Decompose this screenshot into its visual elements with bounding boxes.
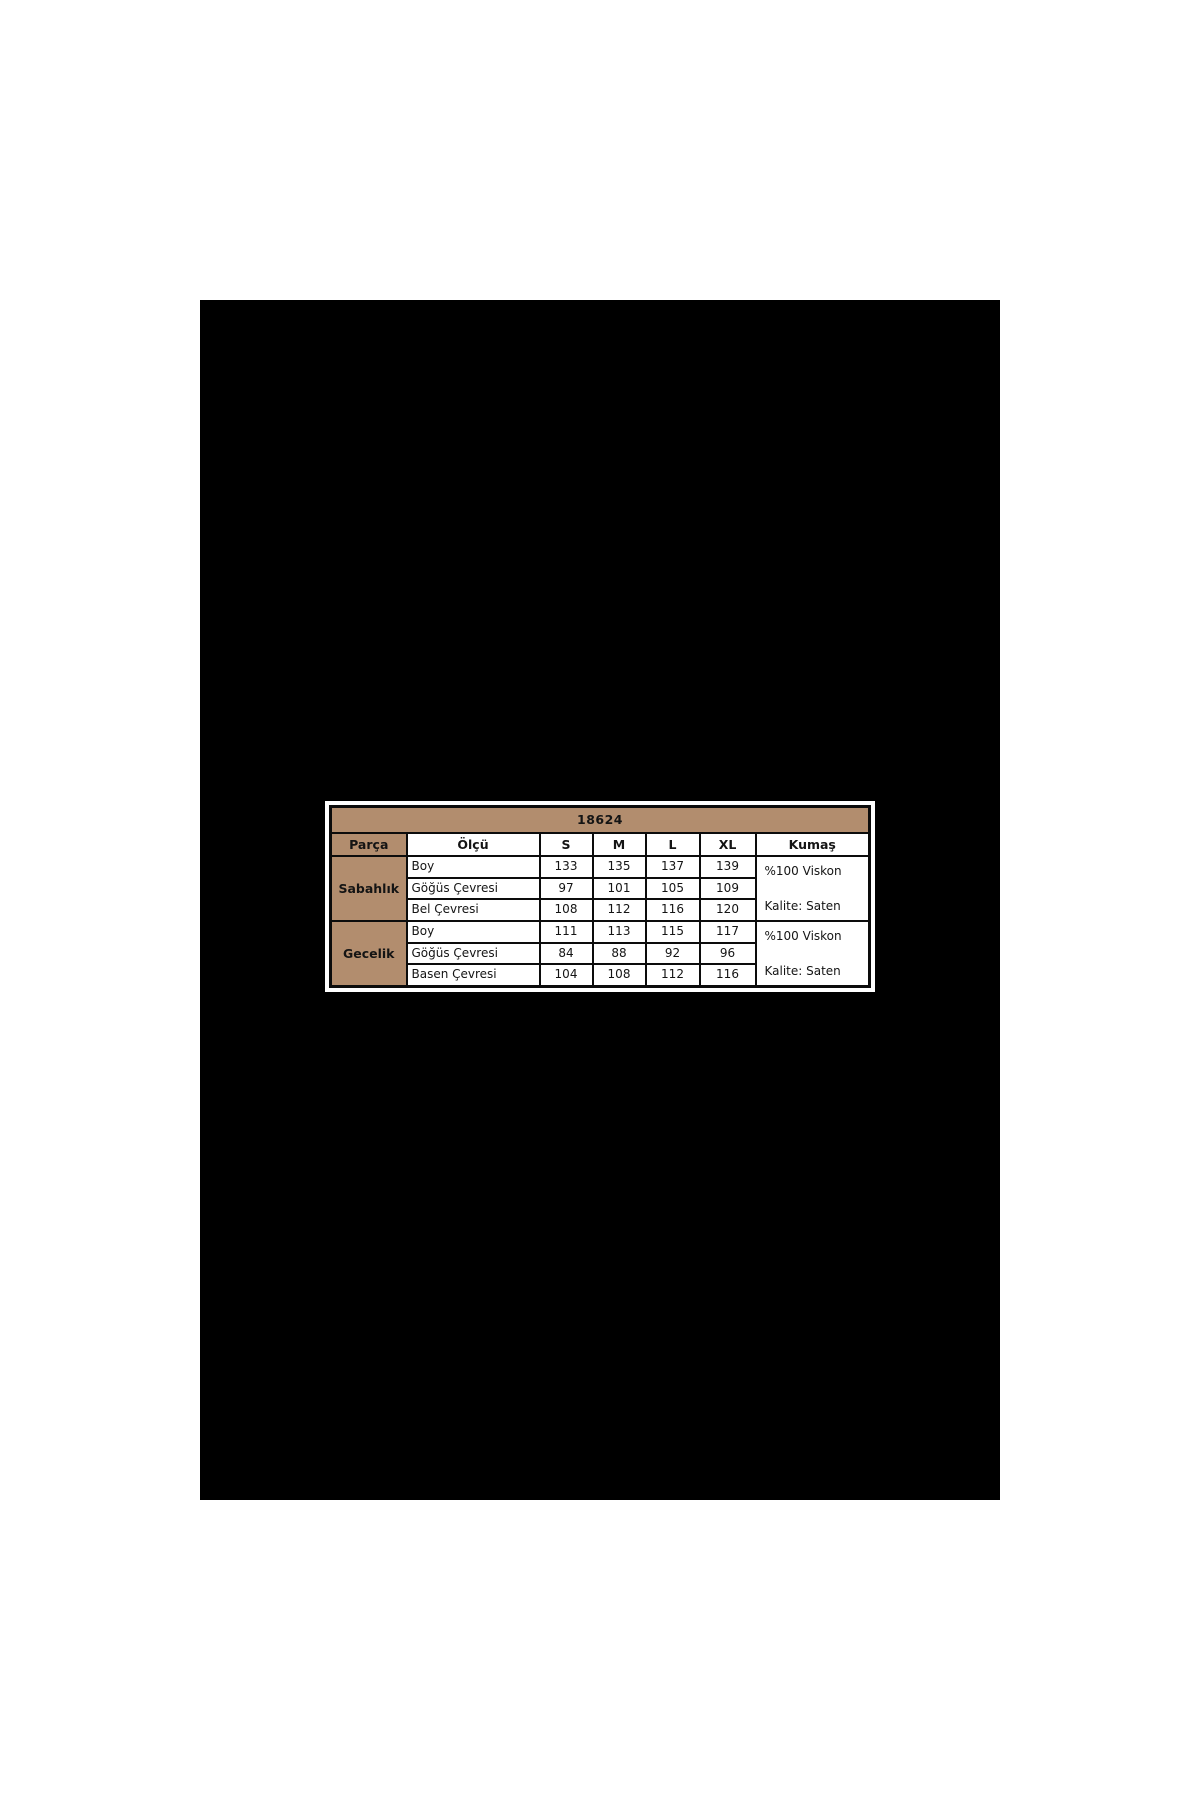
model-code: 18624 [331, 807, 870, 834]
fabric-info-gecelik: %100 Viskon Kalite: Saten [756, 921, 870, 987]
col-header-parca: Parça [331, 833, 407, 856]
part-label-sabahlik: Sabahlık [331, 856, 407, 921]
size-chart-frame: 18624 Parça Ölçü S M L XL Kumaş Sabah [325, 801, 875, 992]
measure-label: Bel Çevresi [407, 899, 540, 921]
size-value: 113 [593, 921, 646, 943]
measure-label: Boy [407, 856, 540, 878]
col-header-xl: XL [700, 833, 756, 856]
size-value: 120 [700, 899, 756, 921]
size-value: 84 [540, 943, 593, 965]
column-header-row: Parça Ölçü S M L XL Kumaş [331, 833, 870, 856]
size-value: 104 [540, 964, 593, 986]
measure-label: Göğüs Çevresi [407, 943, 540, 965]
size-value: 92 [646, 943, 700, 965]
code-row: 18624 [331, 807, 870, 834]
col-header-olcu: Ölçü [407, 833, 540, 856]
fabric-info-lines: %100 Viskon Kalite: Saten [757, 857, 869, 920]
fabric-composition: %100 Viskon [765, 930, 869, 942]
product-photo-background: 18624 Parça Ölçü S M L XL Kumaş Sabah [200, 300, 1000, 1500]
table-row: Sabahlık Boy 133 135 137 139 %100 Viskon… [331, 856, 870, 878]
col-header-l: L [646, 833, 700, 856]
fabric-composition: %100 Viskon [765, 865, 869, 877]
size-value: 117 [700, 921, 756, 943]
table-row: Gecelik Boy 111 113 115 117 %100 Viskon … [331, 921, 870, 943]
size-value: 112 [646, 964, 700, 986]
size-value: 133 [540, 856, 593, 878]
size-value: 88 [593, 943, 646, 965]
size-value: 97 [540, 878, 593, 900]
size-value: 135 [593, 856, 646, 878]
size-value: 139 [700, 856, 756, 878]
size-value: 116 [646, 899, 700, 921]
size-chart-table: 18624 Parça Ölçü S M L XL Kumaş Sabah [329, 805, 871, 988]
size-value: 109 [700, 878, 756, 900]
measure-label: Basen Çevresi [407, 964, 540, 986]
col-header-s: S [540, 833, 593, 856]
fabric-quality: Kalite: Saten [765, 900, 869, 912]
fabric-quality: Kalite: Saten [765, 965, 869, 977]
size-value: 96 [700, 943, 756, 965]
size-value: 111 [540, 921, 593, 943]
size-value: 105 [646, 878, 700, 900]
size-value: 115 [646, 921, 700, 943]
fabric-info-sabahlik: %100 Viskon Kalite: Saten [756, 856, 870, 921]
part-label-gecelik: Gecelik [331, 921, 407, 987]
col-header-kumas: Kumaş [756, 833, 870, 856]
size-value: 108 [540, 899, 593, 921]
measure-label: Göğüs Çevresi [407, 878, 540, 900]
size-value: 116 [700, 964, 756, 986]
fabric-info-lines: %100 Viskon Kalite: Saten [757, 922, 869, 985]
size-value: 108 [593, 964, 646, 986]
page: 18624 Parça Ölçü S M L XL Kumaş Sabah [0, 0, 1200, 1800]
size-value: 101 [593, 878, 646, 900]
measure-label: Boy [407, 921, 540, 943]
size-value: 112 [593, 899, 646, 921]
size-value: 137 [646, 856, 700, 878]
col-header-m: M [593, 833, 646, 856]
